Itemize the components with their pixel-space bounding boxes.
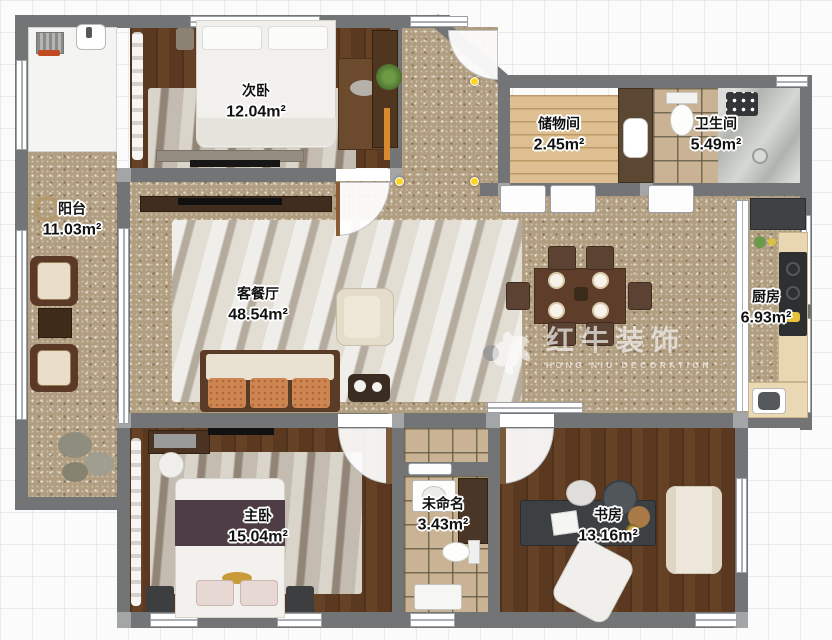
room-label-study[interactable]: 书房 13.16m² xyxy=(578,504,638,547)
window-entry-top[interactable] xyxy=(410,16,468,27)
watermark: 红牛装饰 HONG NIU DECORATION xyxy=(486,326,712,383)
room-area: 6.93m² xyxy=(741,307,792,330)
dining-chair[interactable] xyxy=(548,246,576,270)
armchair-arm xyxy=(712,486,722,574)
red-mat xyxy=(38,50,60,56)
curtain-master xyxy=(131,438,141,606)
dining-chair[interactable] xyxy=(586,246,614,270)
room-label-unnamed[interactable]: 未命名 3.43m² xyxy=(418,493,469,536)
wall-study-left[interactable] xyxy=(488,428,500,628)
room-label-living[interactable]: 客餐厅 48.54m² xyxy=(228,283,288,326)
wall-cap xyxy=(117,168,131,182)
wall-bedroom2-bottom[interactable] xyxy=(117,168,336,182)
room-area: 15.04m² xyxy=(228,526,288,549)
sofa-cushion xyxy=(250,378,288,408)
tv-living[interactable] xyxy=(178,198,282,205)
decor-stone-2 xyxy=(84,452,114,476)
room-label-bedroom2[interactable]: 次卧 12.04m² xyxy=(226,80,286,123)
door-leaf-bedroom2[interactable] xyxy=(336,182,340,236)
room-area: 11.03m² xyxy=(43,219,102,242)
wall-living-bottom[interactable] xyxy=(117,413,812,428)
toilet-unnamed[interactable] xyxy=(442,542,470,562)
window-study-right[interactable] xyxy=(736,478,747,573)
room-name: 阳台 xyxy=(43,198,102,218)
window-balcony-left-2[interactable] xyxy=(16,230,27,420)
fridge[interactable] xyxy=(750,198,806,230)
bull-icon xyxy=(486,326,538,383)
wall-cap xyxy=(117,612,131,628)
door-panel-storage-1[interactable] xyxy=(500,185,546,213)
vertex-handle[interactable] xyxy=(395,177,404,186)
plate xyxy=(548,302,565,319)
sofa-back xyxy=(206,354,334,380)
room-name: 卫生间 xyxy=(691,113,742,133)
window-balcony-left-1[interactable] xyxy=(16,60,27,150)
wall-top-right[interactable] xyxy=(498,75,812,88)
desk-papers xyxy=(551,510,580,535)
cabinet-accent xyxy=(384,108,390,160)
room-name: 书房 xyxy=(578,504,638,524)
room-area: 2.45m² xyxy=(534,134,585,157)
decor-stone-1 xyxy=(58,432,92,458)
room-label-balcony[interactable]: 阳台 11.03m² xyxy=(43,198,102,241)
room-name: 次卧 xyxy=(226,80,286,100)
nightstand-master-right[interactable] xyxy=(286,586,314,612)
plant-icon[interactable] xyxy=(376,64,402,90)
floorplan-canvas: 次卧 12.04m² 储物间 2.45m² 卫生间 5.49m² 阳台 11.0… xyxy=(0,0,832,640)
curtain-bedroom2 xyxy=(132,32,143,160)
room-label-master[interactable]: 主卧 15.04m² xyxy=(228,505,288,548)
window-bottom-4[interactable] xyxy=(695,613,737,627)
balcony-table[interactable] xyxy=(38,308,72,338)
toilet-tank xyxy=(666,92,698,104)
room-label-storage[interactable]: 储物间 2.45m² xyxy=(534,113,585,156)
door-leaf-study[interactable] xyxy=(500,428,506,484)
pillow xyxy=(202,26,262,50)
centerpiece xyxy=(574,287,588,301)
room-area: 48.54m² xyxy=(228,304,288,327)
pillow xyxy=(196,580,234,606)
tv-bedroom2[interactable] xyxy=(190,160,280,167)
plant-item xyxy=(754,236,766,248)
plate xyxy=(354,380,366,392)
dining-chair[interactable] xyxy=(628,282,652,310)
dining-chair[interactable] xyxy=(506,282,530,310)
decor-stone-3 xyxy=(62,462,88,482)
door-threshold-master xyxy=(338,414,392,427)
sliding-panel-living[interactable] xyxy=(487,402,583,413)
round-stool[interactable] xyxy=(566,480,596,506)
sliding-door-balcony[interactable] xyxy=(118,228,129,424)
room-area: 12.04m² xyxy=(226,101,286,124)
round-lamp[interactable] xyxy=(158,452,184,478)
wall-master-right[interactable] xyxy=(392,428,404,618)
nightstand[interactable] xyxy=(176,28,194,50)
window-bottom-3[interactable] xyxy=(410,613,455,627)
kitchen-sink-basin xyxy=(758,392,780,410)
vertex-handle[interactable] xyxy=(470,77,479,86)
room-label-bathroom[interactable]: 卫生间 5.49m² xyxy=(691,113,742,156)
pillow xyxy=(268,26,328,50)
shower-drain-icon xyxy=(752,148,768,164)
sofa-cushion xyxy=(292,378,330,408)
plate xyxy=(372,382,382,392)
room-area: 13.16m² xyxy=(578,525,638,548)
wall-cap xyxy=(733,413,748,428)
watermark-brand: 红牛装饰 xyxy=(546,326,712,357)
wardrobe-panel xyxy=(154,434,196,448)
door-threshold-bedroom2 xyxy=(336,169,390,181)
vertex-handle[interactable] xyxy=(470,177,479,186)
room-name: 主卧 xyxy=(228,505,288,525)
armchair-arm xyxy=(666,486,676,574)
shower-tray-unnamed[interactable] xyxy=(414,584,462,610)
nightstand-master-left[interactable] xyxy=(146,586,174,612)
plate xyxy=(548,272,565,289)
door-threshold-study xyxy=(500,414,554,427)
tv-master[interactable] xyxy=(208,428,274,435)
room-label-kitchen[interactable]: 厨房 6.93m² xyxy=(741,286,792,329)
room-name: 储物间 xyxy=(534,113,585,133)
room-area: 3.43m² xyxy=(418,514,469,537)
door-panel-bathroom[interactable] xyxy=(648,185,694,213)
plate xyxy=(592,272,609,289)
wall-balcony-bottom[interactable] xyxy=(15,497,120,510)
door-unnamed-bath[interactable] xyxy=(408,463,452,475)
plate xyxy=(592,302,609,319)
faucet-icon xyxy=(86,27,92,38)
pillow xyxy=(240,580,278,606)
watermark-subtitle: HONG NIU DECORATION xyxy=(546,360,712,370)
door-leaf-master[interactable] xyxy=(386,428,392,484)
room-name: 厨房 xyxy=(741,286,792,306)
sofa-cushion xyxy=(208,378,246,408)
balcony-chair-2-seat xyxy=(37,350,71,386)
wall-cap xyxy=(486,413,500,428)
balcony-chair-1-seat xyxy=(37,262,71,300)
lemon-item xyxy=(768,238,776,246)
room-area: 5.49m² xyxy=(691,134,742,157)
armchair-cushion xyxy=(344,296,380,338)
wall-storage-left[interactable] xyxy=(498,85,510,183)
room-name: 未命名 xyxy=(418,493,469,513)
door-panel-storage-2[interactable] xyxy=(550,185,596,213)
room-name: 客餐厅 xyxy=(228,283,288,303)
burner-icon xyxy=(786,262,800,276)
washbasin[interactable] xyxy=(623,118,648,158)
window-bathroom-top[interactable] xyxy=(776,76,808,87)
